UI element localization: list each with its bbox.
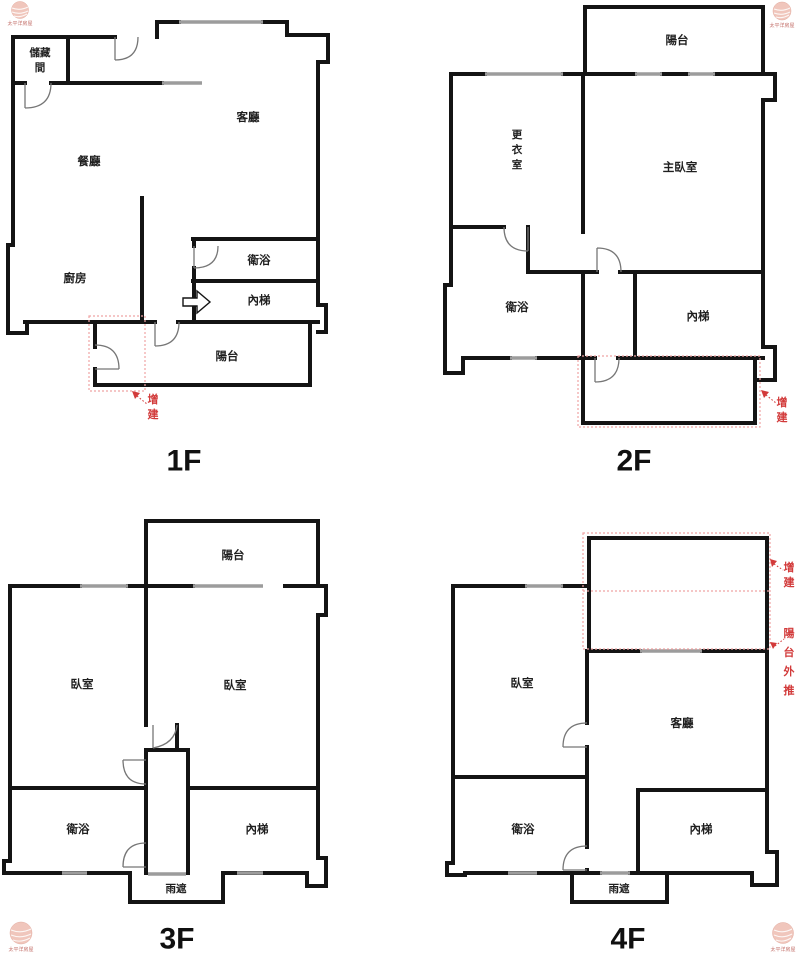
floor-label-2f: 2F: [616, 445, 651, 478]
room-label-bedroom-left-3f: 臥室: [71, 677, 94, 691]
watermark-logo-icon: [773, 923, 794, 944]
annotation-addition-1f-line1: 增: [148, 392, 159, 406]
pushout-leader-line-4f: [775, 639, 784, 646]
annotation-pushout-4f-line3: 外: [783, 664, 795, 678]
addition-leader-line-2f: [766, 395, 776, 403]
windows-1f: [162, 22, 263, 83]
room-label-dining-1f: 餐廳: [77, 154, 101, 168]
walls-2f: [445, 7, 775, 423]
watermark-label: 太平洋房屋: [7, 20, 32, 27]
watermark-label: 太平洋房屋: [769, 22, 794, 29]
door-arcs-1f: [25, 37, 218, 369]
windows-3f: [62, 586, 263, 874]
annotation-pushout-4f-line4: 推: [784, 683, 795, 697]
room-label-bath-1f: 衛浴: [247, 253, 271, 267]
addition-leader-line-1f: [137, 396, 147, 404]
room-label-storage-1f-line1: 儲藏: [29, 46, 51, 59]
addition-leader-line-4f: [774, 564, 783, 570]
room-label-canopy-3f: 雨遮: [166, 882, 187, 895]
addition-leader-arrow-1f: [132, 391, 140, 399]
room-label-dressing-2f-line3: 室: [512, 158, 523, 171]
addition-leader-arrow-2f: [761, 390, 769, 398]
annotation-addition-4f-line2: 建: [784, 575, 796, 589]
floor-label-3f: 3F: [159, 923, 194, 956]
room-label-living-1f: 客廳: [236, 110, 260, 124]
room-label-stairs-4f: 內梯: [690, 822, 713, 836]
room-label-canopy-4f: 雨遮: [609, 882, 630, 895]
room-label-storage-1f-line2: 間: [35, 62, 46, 74]
room-label-bedroom-right-3f: 臥室: [224, 678, 247, 692]
room-label-master-2f: 主臥室: [663, 160, 698, 174]
walls-3f: [4, 521, 326, 902]
watermark-top-left: 太平洋房屋: [2, 0, 42, 34]
room-label-stairs-2f: 內梯: [687, 309, 710, 323]
room-label-balcony-3f: 陽台: [222, 548, 245, 562]
annotation-addition-2f-line2: 建: [777, 410, 789, 424]
floorplan-3f: 陽台 臥室 臥室 衛浴 內梯 雨遮 3F: [0, 478, 400, 956]
floorplan-1f: 儲藏 間 客廳 餐廳 廚房 衛浴 內梯 陽台 增 建 1F: [0, 0, 400, 478]
floorplan-2f: 陽台 更 衣 室 主臥室 衛浴 內梯 增 建 2F: [400, 0, 801, 478]
room-label-dressing-2f-line1: 更: [512, 129, 523, 141]
annotation-pushout-4f-line1: 陽: [784, 626, 795, 640]
addition-dashed-outline-2f: [578, 356, 760, 427]
floorplan-4f: 臥室 客廳 衛浴 內梯 雨遮 增 建 陽 台 外 推 4F: [400, 478, 801, 956]
room-label-dressing-2f-line2: 衣: [512, 143, 523, 156]
floor-label-1f: 1F: [166, 445, 201, 478]
watermark-label: 太平洋房屋: [770, 946, 795, 953]
room-label-stairs-1f: 內梯: [248, 293, 271, 307]
watermark-label: 太平洋房屋: [8, 946, 33, 953]
room-label-balcony-1f: 陽台: [216, 349, 239, 363]
room-label-bedroom-4f: 臥室: [511, 676, 534, 690]
room-label-bath-4f: 衛浴: [511, 822, 535, 836]
room-label-living-4f: 客廳: [670, 716, 694, 730]
annotation-addition-1f-line2: 建: [148, 407, 160, 421]
watermark-top-right: 太平洋房屋: [762, 0, 801, 34]
addition-dashed-outline-1f: [89, 316, 145, 391]
door-arcs-3f: [123, 725, 177, 867]
annotation-addition-4f-line1: 增: [784, 560, 795, 574]
floorplan-page: 儲藏 間 客廳 餐廳 廚房 衛浴 內梯 陽台 增 建 1F 陽台 更 衣 室 主…: [0, 0, 801, 956]
floor-label-4f: 4F: [610, 923, 645, 956]
room-label-bath-2f: 衛浴: [505, 300, 529, 314]
walls-1f: [8, 22, 328, 385]
room-label-balcony-2f: 陽台: [666, 33, 689, 47]
annotation-addition-2f-line1: 增: [777, 395, 788, 409]
windows-2f: [485, 74, 715, 358]
addition-dashed-outline-4f: [583, 533, 770, 649]
walls-4f: [447, 538, 777, 902]
annotation-pushout-4f-line2: 台: [784, 645, 795, 659]
addition-leader-arrow-4f: [770, 559, 777, 567]
watermark-bottom-right: 太平洋房屋: [760, 918, 801, 956]
room-label-kitchen-1f: 廚房: [64, 271, 87, 285]
watermark-bottom-left: 太平洋房屋: [2, 918, 46, 956]
room-label-bath-3f: 衛浴: [66, 822, 90, 836]
room-label-stairs-3f: 內梯: [246, 822, 269, 836]
entry-arrow-icon: [183, 291, 210, 313]
door-arcs-4f: [563, 723, 587, 870]
